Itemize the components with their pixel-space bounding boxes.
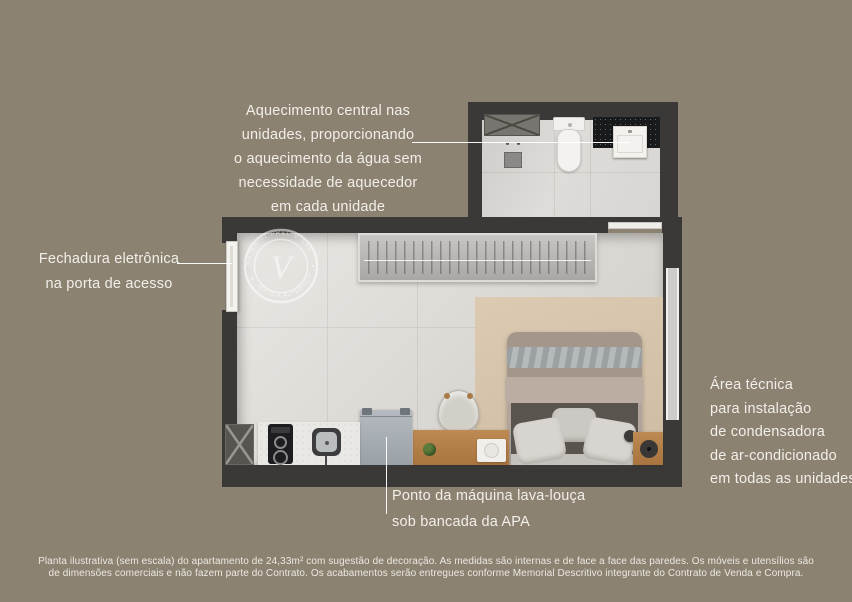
annotation-line: em todas as unidades: [710, 468, 852, 492]
marketing-floorplan-page: MATERIAL PRELIMINAR SUJEITO A ALTERAÇÕES…: [0, 0, 852, 602]
annotation-dishwasher-point: Ponto da máquina lava-louça sob bancada …: [392, 484, 612, 535]
annotation-electronic-lock: Fechadura eletrônica na porta de acesso: [35, 247, 183, 296]
bed-duvet-edge: [505, 377, 644, 403]
toilet-bowl-icon: [557, 129, 581, 172]
kitchen-shaft-icon: [225, 424, 254, 465]
annotation-line: unidades, proporcionando: [228, 123, 428, 147]
plant-icon: [423, 443, 436, 456]
annotation-line: para instalação: [710, 398, 852, 422]
disclaimer: Planta ilustrativa (sem escala) do apart…: [30, 556, 822, 579]
annotation-line: na porta de acesso: [35, 272, 183, 297]
bathroom-tile-line: [554, 120, 555, 217]
leader-line-central-heating: [412, 142, 630, 143]
cup-icon: [484, 443, 499, 458]
left-wall-upper: [222, 217, 237, 243]
leader-line-electronic-lock: [177, 263, 232, 264]
bathroom-right-wall: [660, 102, 678, 217]
vent-shaft-icon: [484, 114, 540, 136]
bed-throw: [507, 347, 642, 368]
closet-hangers-icon: [368, 241, 587, 274]
chair: [438, 390, 479, 432]
entrance-door-icon: [226, 241, 238, 312]
badge-letter: V: [271, 250, 296, 287]
kitchen-sink-icon: [312, 428, 341, 456]
annotation-line: Ponto da máquina lava-louça: [392, 484, 612, 510]
lamp-icon: [640, 440, 658, 458]
annotation-line: em cada unidade: [228, 195, 428, 219]
annotation-line: Aquecimento central nas: [228, 99, 428, 123]
bathroom-tile-line: [482, 172, 660, 173]
annotation-line: necessidade de aquecedor: [228, 171, 428, 195]
cooktop-icon: [268, 424, 293, 464]
bed: [507, 332, 642, 465]
leader-line-dishwasher: [386, 437, 387, 514]
annotation-line: de ar-condicionado: [710, 445, 852, 469]
closet-rod-icon: [364, 260, 591, 262]
disclaimer-line: Planta ilustrativa (sem escala) do apart…: [30, 556, 822, 568]
annotation-line: Área técnica: [710, 374, 852, 398]
shower-drain-icon: [504, 152, 522, 168]
pillow-left: [512, 416, 568, 466]
annotation-central-heating: Aquecimento central nas unidades, propor…: [228, 99, 428, 219]
annotation-line: sob bancada da APA: [392, 510, 612, 536]
annotation-line: Fechadura eletrônica: [35, 247, 183, 272]
desk: [413, 430, 509, 465]
annotation-technical-area: Área técnica para instalação de condensa…: [710, 374, 852, 492]
disclaimer-line: de dimensões comerciais e não fazem part…: [30, 568, 822, 580]
floor-tile-line: [237, 327, 477, 328]
annotation-line: de condensadora: [710, 421, 852, 445]
tray: [477, 439, 506, 462]
bathroom-sliding-door: [608, 222, 662, 229]
closet: [358, 233, 597, 282]
bathroom-tile-line: [590, 120, 591, 217]
right-window: [666, 268, 679, 420]
annotation-line: o aquecimento da água sem: [228, 147, 428, 171]
bathroom-left-wall: [468, 102, 482, 217]
preliminary-material-badge: MATERIAL PRELIMINAR SUJEITO A ALTERAÇÕES…: [241, 226, 321, 306]
